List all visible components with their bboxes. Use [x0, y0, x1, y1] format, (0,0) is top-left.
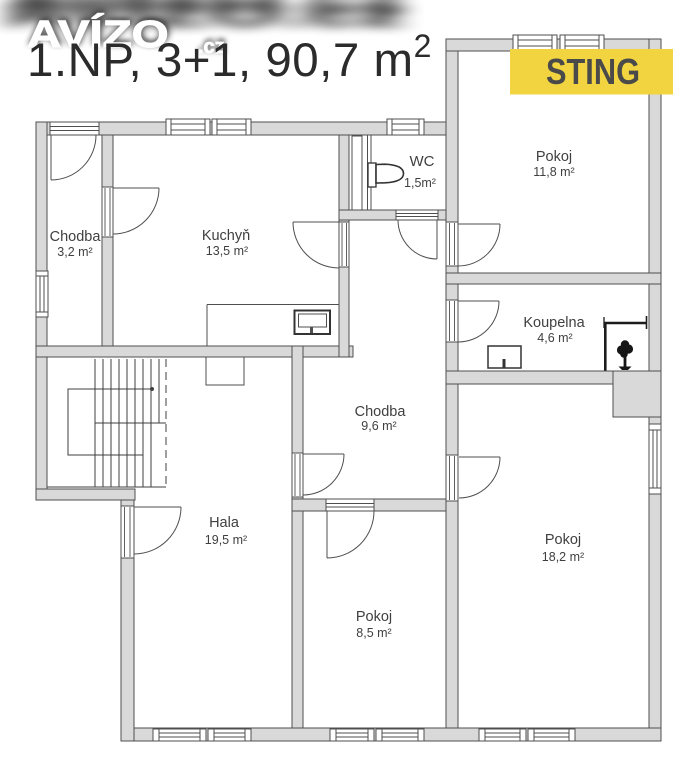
svg-text:Chodba: Chodba — [355, 404, 407, 420]
svg-text:4,6 m²: 4,6 m² — [537, 331, 572, 345]
svg-text:11,8 m²: 11,8 m² — [533, 165, 574, 179]
svg-text:8,5 m²: 8,5 m² — [356, 626, 391, 640]
svg-text:18,2 m²: 18,2 m² — [542, 550, 584, 564]
svg-text:3,2 m²: 3,2 m² — [57, 245, 92, 259]
svg-text:13,5 m²: 13,5 m² — [206, 244, 248, 258]
svg-text:Pokoj: Pokoj — [356, 609, 392, 625]
svg-text:Koupelna: Koupelna — [523, 315, 585, 331]
svg-text:WC: WC — [410, 153, 435, 170]
svg-text:Pokoj: Pokoj — [536, 149, 572, 165]
svg-text:Hala: Hala — [209, 515, 240, 531]
svg-text:1,5m²: 1,5m² — [404, 176, 436, 190]
svg-text:STING: STING — [546, 51, 640, 92]
svg-text:19,5 m²: 19,5 m² — [205, 533, 247, 547]
svg-text:Kuchyň: Kuchyň — [202, 228, 250, 244]
svg-text:9,6 m²: 9,6 m² — [361, 419, 396, 433]
svg-text:Chodba: Chodba — [50, 229, 102, 245]
svg-text:1.NP, 3+1, 90,7 m2: 1.NP, 3+1, 90,7 m2 — [27, 28, 432, 87]
svg-text:Pokoj: Pokoj — [545, 532, 581, 548]
